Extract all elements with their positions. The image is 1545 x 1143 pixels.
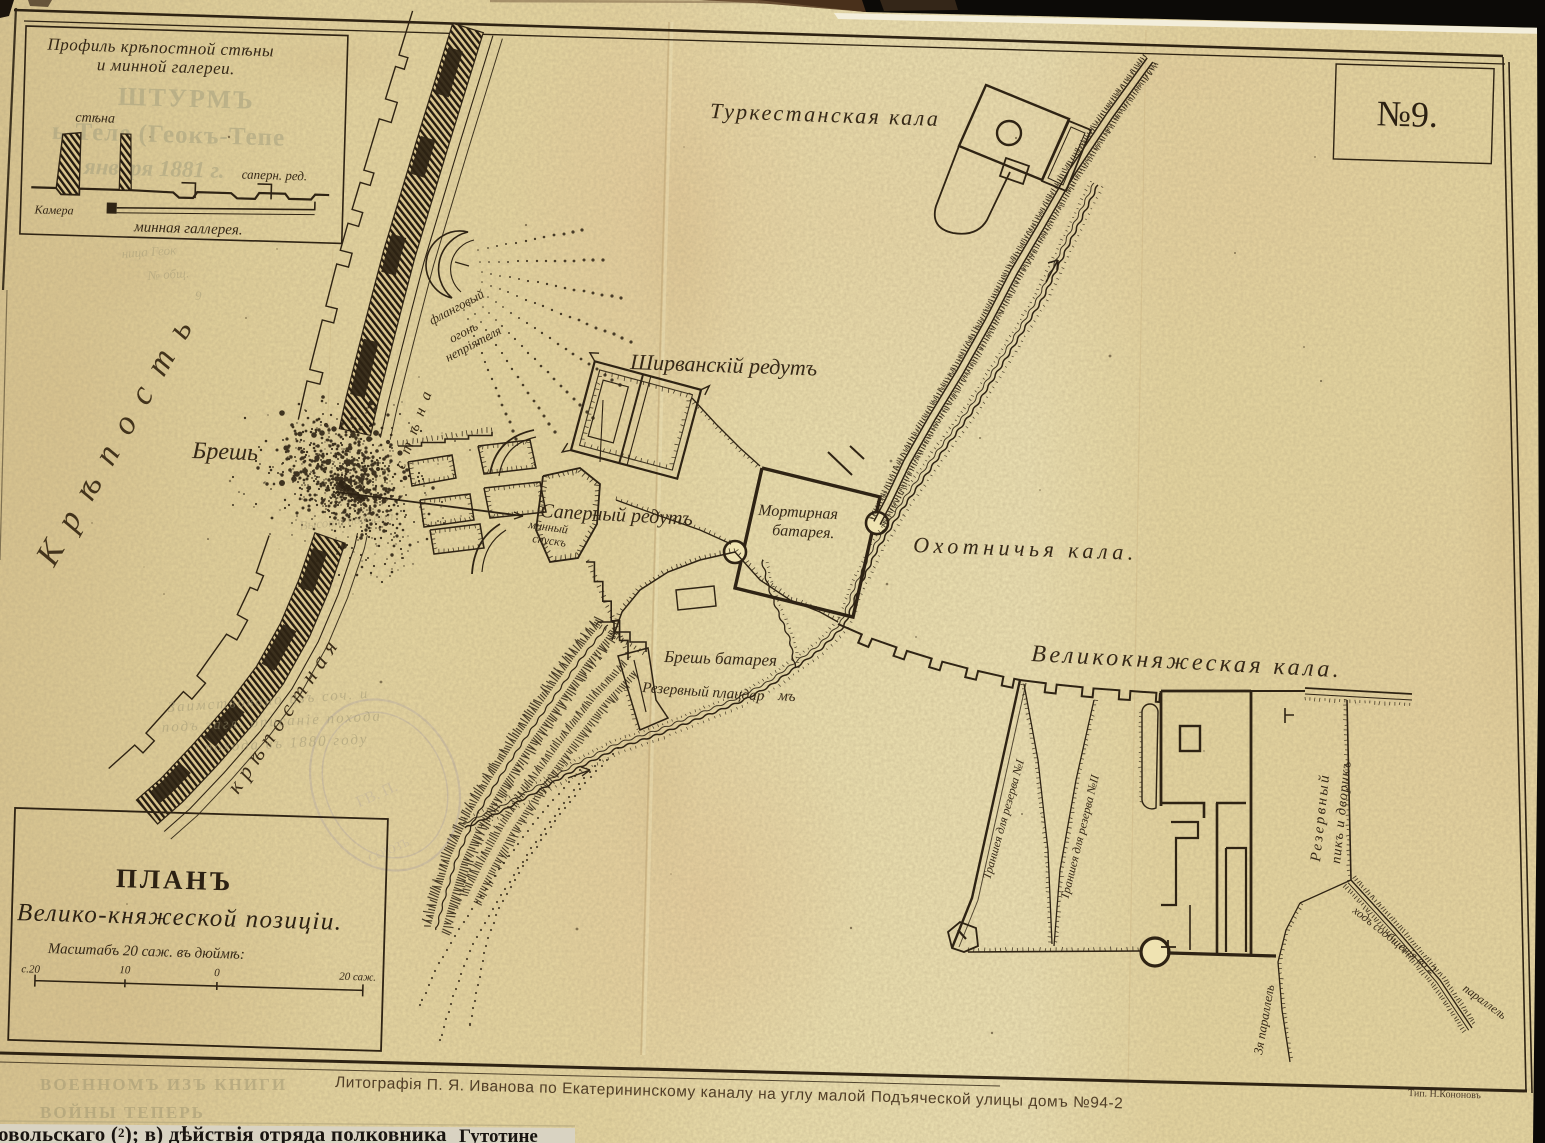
svg-text:саперн. ред.: саперн. ред. [242,166,308,183]
svg-text:ВОЕННОМЪ ИЗЪ КНИГИ: ВОЕННОМЪ ИЗЪ КНИГИ [40,1075,287,1094]
svg-text:20 саж.: 20 саж. [339,971,376,984]
svg-text:с.20: с.20 [21,963,40,976]
svg-text:Брешь батарея: Брешь батарея [663,647,778,670]
svg-text:января 1881 г.: января 1881 г. [83,154,225,183]
svg-text:9: 9 [195,288,202,303]
svg-text:овольскаго (2); в) дѣйствія от: овольскаго (2); в) дѣйствія отряда полко… [0,1122,447,1143]
svg-text:ПЛАНЪ: ПЛАНЪ [116,863,234,896]
svg-text:ВОЙНЫ ТЕПЕРЬ: ВОЙНЫ ТЕПЕРЬ [40,1103,205,1122]
svg-text:№ общ.: № общ. [146,265,189,283]
svg-text:минная галлерея.: минная галлерея. [133,219,243,238]
svg-text:мъ: мъ [777,688,797,705]
svg-text:стѣна: стѣна [75,111,115,127]
svg-text:Гутотине: Гутотине [459,1126,538,1143]
svg-text:№9.: №9. [1376,93,1439,135]
svg-text:Камера: Камера [33,202,73,217]
svg-text:Тип. Н.Кононовъ: Тип. Н.Кононовъ [1408,1088,1481,1101]
svg-text:Брешь: Брешь [191,438,259,466]
svg-text:0: 0 [214,967,220,979]
svg-text:10: 10 [119,964,131,976]
svg-text:батарея.: батарея. [772,522,835,542]
svg-text:ШТУРМЪ: ШТУРМЪ [118,82,256,115]
